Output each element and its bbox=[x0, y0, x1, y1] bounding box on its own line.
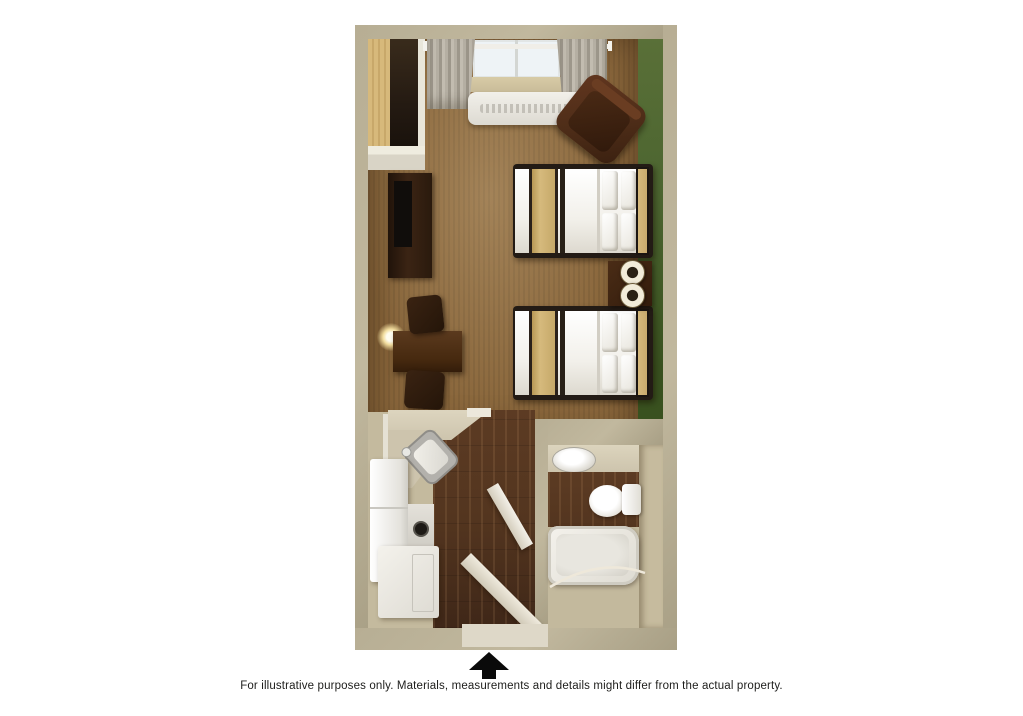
closet-interior bbox=[390, 36, 418, 152]
bed-frame-strip bbox=[560, 169, 565, 253]
desk-table bbox=[393, 331, 462, 372]
shower-curtain-rod bbox=[545, 555, 655, 605]
bed-2 bbox=[513, 306, 653, 400]
bed-runner bbox=[529, 311, 558, 395]
bed-runner bbox=[529, 169, 558, 253]
arrow-head bbox=[469, 652, 509, 670]
pillow bbox=[621, 313, 637, 352]
toilet-tank bbox=[622, 484, 641, 515]
sheet-fold bbox=[597, 169, 600, 253]
pillow bbox=[621, 171, 637, 210]
closet-trim bbox=[418, 34, 425, 164]
pillow bbox=[602, 213, 618, 252]
table-lamp-icon bbox=[620, 283, 645, 308]
headboard bbox=[636, 309, 649, 397]
curtain-rod-end bbox=[423, 41, 427, 51]
burner bbox=[413, 521, 429, 537]
wall-left bbox=[355, 25, 368, 650]
entrance-arrow-icon bbox=[469, 652, 509, 680]
desk-chair-1 bbox=[406, 294, 445, 334]
headboard bbox=[636, 167, 649, 255]
closet-shelving bbox=[368, 34, 390, 146]
pillow bbox=[602, 355, 618, 394]
kitchen-cabinet bbox=[378, 546, 439, 618]
wall-right bbox=[663, 25, 677, 650]
pillow bbox=[621, 213, 637, 252]
sheet-fold bbox=[597, 311, 600, 395]
arrow-stem bbox=[482, 670, 496, 679]
window-sill bbox=[467, 77, 566, 92]
table-lamp-icon bbox=[620, 260, 645, 285]
bathroom-sink bbox=[552, 447, 596, 473]
bed-1 bbox=[513, 164, 653, 258]
desk-chair-2 bbox=[404, 370, 446, 411]
fridge-divider bbox=[370, 507, 408, 509]
sink-basin bbox=[411, 437, 450, 477]
floor-plan-page: For illustrative purposes only. Material… bbox=[0, 0, 1023, 716]
pillow bbox=[602, 313, 618, 352]
floor-plan-image bbox=[355, 25, 677, 650]
bathroom-wall-top bbox=[535, 419, 663, 445]
entry-threshold bbox=[462, 624, 548, 647]
pillow bbox=[621, 355, 637, 394]
pillow bbox=[602, 171, 618, 210]
toilet bbox=[589, 485, 625, 517]
curtain-rod-end bbox=[608, 41, 612, 51]
wall-top bbox=[355, 25, 677, 39]
cabinet-door bbox=[412, 554, 434, 612]
closet-wall-ledge bbox=[368, 146, 425, 170]
tv bbox=[394, 181, 412, 247]
pillows bbox=[602, 171, 636, 251]
disclaimer-caption: For illustrative purposes only. Material… bbox=[0, 680, 1023, 692]
bed-frame-strip bbox=[560, 311, 565, 395]
counter-end-cap bbox=[467, 408, 491, 417]
pillows bbox=[602, 313, 636, 393]
hallway-wood-floor bbox=[433, 410, 535, 628]
